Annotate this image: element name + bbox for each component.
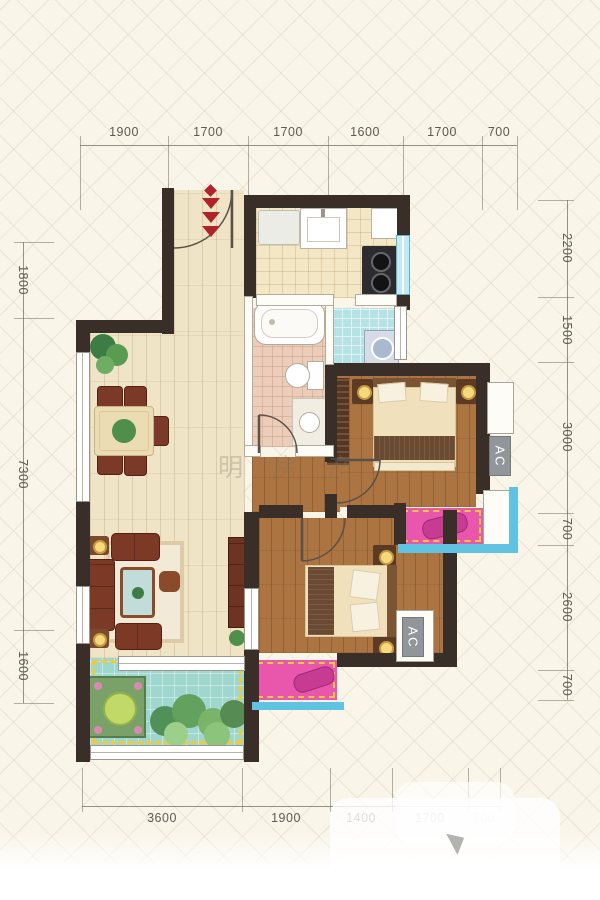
loveseat <box>115 623 162 650</box>
entry-arrow-icon <box>202 198 220 209</box>
wall <box>244 195 256 298</box>
wall <box>76 644 90 762</box>
ac-badge: AC <box>489 436 511 476</box>
dim-label-left: 7300 <box>15 442 31 506</box>
basin-icon <box>299 412 320 433</box>
window <box>76 352 90 502</box>
blanket <box>308 567 334 635</box>
dim-label-top: 1700 <box>412 125 472 139</box>
double-bed <box>305 565 397 637</box>
dim-tick <box>538 362 574 363</box>
table-plant <box>132 587 144 599</box>
dim-tick <box>14 242 54 243</box>
bathtub <box>254 302 325 345</box>
kitchen-counter <box>371 208 399 239</box>
vanity-sink <box>292 398 327 446</box>
dim-tick <box>82 768 83 812</box>
pillow <box>377 382 407 403</box>
lamp-icon <box>379 550 394 565</box>
partition-wall <box>244 296 253 448</box>
dim-label-top: 1600 <box>335 125 395 139</box>
dim-tick <box>330 768 331 812</box>
partition-wall <box>256 294 334 306</box>
dim-label-right: 3000 <box>559 405 575 469</box>
kitchen-sink <box>300 208 347 249</box>
wall <box>90 320 174 333</box>
toilet-bowl <box>285 363 310 388</box>
dim-label-right: 2600 <box>559 575 575 639</box>
dim-line-top <box>80 145 517 146</box>
wall <box>259 505 303 518</box>
watermark-text: 明房产 <box>218 448 418 484</box>
bay-window-bedroom2 <box>255 660 337 700</box>
loveseat <box>111 533 160 561</box>
kitchen-window <box>396 235 410 295</box>
sink-basin <box>307 217 340 242</box>
pillow <box>350 602 381 633</box>
flower-icon <box>94 726 102 734</box>
washer-drum-icon <box>371 337 394 360</box>
dim-label-bottom: 3600 <box>132 811 192 825</box>
partition-wall <box>355 294 397 306</box>
window-sill <box>483 490 512 546</box>
bay-frame <box>398 544 518 553</box>
lamp-icon <box>357 385 372 400</box>
pillow <box>349 569 381 601</box>
wall <box>347 505 395 518</box>
dim-label-left: 1800 <box>15 248 31 312</box>
wall <box>443 510 457 667</box>
dim-label-right: 2200 <box>559 216 575 280</box>
dim-label-bottom: 1900 <box>256 811 316 825</box>
window <box>76 586 90 644</box>
potted-plant <box>229 630 245 646</box>
bay-window-bedroom1 <box>400 508 483 544</box>
stool <box>159 571 180 592</box>
dim-tick <box>80 136 81 210</box>
dim-tick <box>517 136 518 210</box>
dim-label-left: 1600 <box>15 634 31 698</box>
toilet <box>285 361 323 389</box>
faucet-icon <box>321 209 325 217</box>
dim-label-top: 1900 <box>94 125 154 139</box>
floorplan-canvas: 1900 1700 1700 1600 1700 700 3600 1900 1… <box>0 0 600 900</box>
wall <box>397 195 410 235</box>
drain-icon <box>269 319 275 325</box>
flower-icon <box>134 682 142 690</box>
entry-arrow-icon <box>202 226 220 237</box>
table-plant <box>112 419 136 443</box>
burner-icon <box>371 273 391 293</box>
burner-icon <box>371 252 391 272</box>
dim-label-top: 1700 <box>258 125 318 139</box>
sofa <box>86 559 115 631</box>
ac-badge: AC <box>402 617 424 657</box>
bay-frame <box>252 702 344 710</box>
garden-mat <box>88 676 146 738</box>
potted-plant <box>96 356 114 374</box>
dim-tick <box>482 136 483 210</box>
dim-label-right: 700 <box>559 653 575 717</box>
dining-table <box>94 406 154 456</box>
ac-label: AC <box>493 445 508 467</box>
dim-label-right: 700 <box>559 497 575 561</box>
window <box>244 588 259 650</box>
balcony-sliding-door <box>118 656 245 671</box>
lamp-icon <box>93 540 107 554</box>
wall <box>244 512 259 588</box>
lamp-icon <box>461 385 476 400</box>
garden-table <box>103 692 137 726</box>
flower-icon <box>134 726 142 734</box>
partition-wall <box>325 296 334 365</box>
dim-tick <box>14 630 54 631</box>
ac-label: AC <box>406 626 421 648</box>
wall <box>394 503 406 545</box>
dim-label-top: 1700 <box>178 125 238 139</box>
coffee-table <box>120 567 155 618</box>
dim-tick <box>14 703 54 704</box>
wall <box>325 363 490 376</box>
balcony-plants <box>164 722 188 746</box>
wall <box>325 494 337 518</box>
dim-label-right: 1500 <box>559 298 575 362</box>
wall <box>162 188 174 334</box>
dim-label-top: 700 <box>469 125 529 139</box>
dim-tick <box>538 200 574 201</box>
entry-arrow-icon <box>202 212 220 223</box>
fridge <box>258 210 300 245</box>
ac-platform <box>487 382 514 434</box>
lamp-icon <box>93 633 107 647</box>
wall <box>248 195 410 208</box>
balcony-railing <box>90 745 244 760</box>
flower-icon <box>94 682 102 690</box>
dim-tick <box>242 768 243 812</box>
dim-tick <box>14 318 54 319</box>
window <box>394 306 407 360</box>
stove <box>362 246 397 295</box>
pillow <box>419 382 448 403</box>
wall <box>76 320 90 352</box>
wall <box>76 502 90 586</box>
